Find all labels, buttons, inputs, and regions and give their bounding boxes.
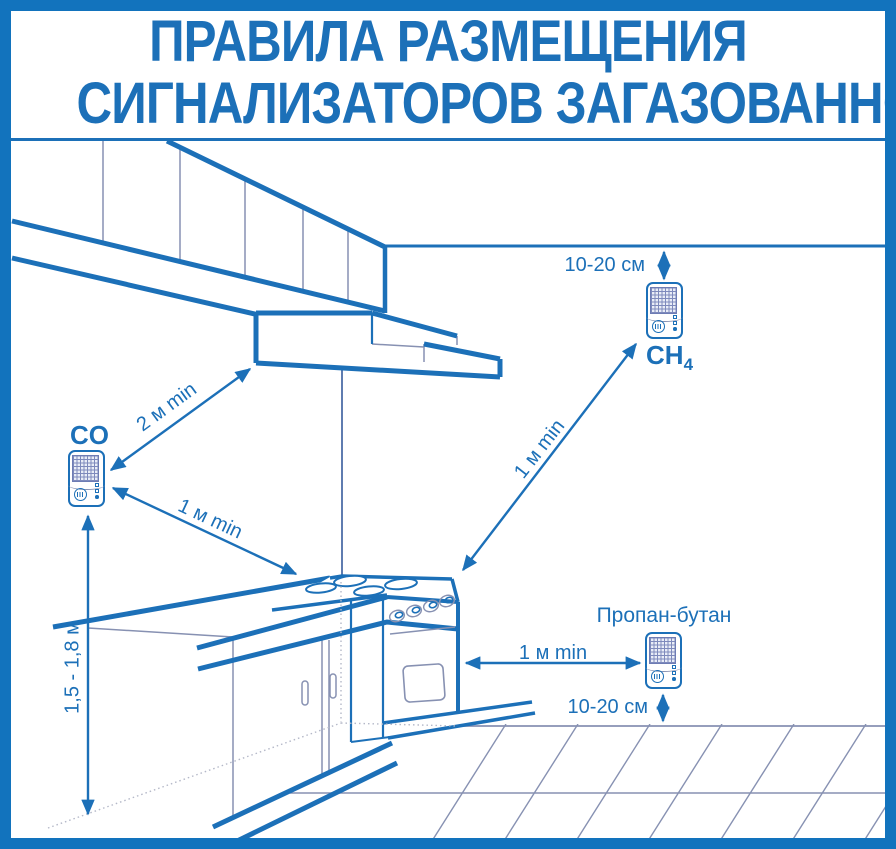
- detector-wave-line: [645, 662, 682, 672]
- ch4-label: CH4: [646, 340, 693, 375]
- ch4-detector: [646, 282, 683, 339]
- oven-door: [403, 664, 445, 703]
- gas-detector-placement-poster: ПРАВИЛА РАЗМЕЩЕНИЯ СИГНАЛИЗАТОРОВ ЗАГАЗО…: [0, 0, 896, 849]
- dim-arrow-co-stove: [113, 488, 296, 574]
- detector-grille: [650, 287, 677, 314]
- poster-title-line2: СИГНАЛИЗАТОРОВ ЗАГАЗОВАННОСТИ: [77, 73, 820, 135]
- dim-label-floor-offset: 10-20 см: [548, 696, 648, 719]
- ch4-label-main: CH: [646, 340, 684, 370]
- dim-label-mount-height: 1,5 - 1,8 м: [62, 608, 85, 728]
- propane-label: Пропан-бутан: [584, 604, 744, 628]
- ch4-label-sub: 4: [684, 355, 693, 374]
- dim-label-stove-min-propane: 1 м min: [498, 642, 608, 665]
- propane-detector: [645, 632, 682, 689]
- room-walls: [342, 246, 885, 581]
- cooker-hood: [256, 311, 502, 379]
- detector-logo-icon: [651, 670, 664, 683]
- detector-grille: [649, 637, 676, 664]
- detector-leds: [673, 315, 677, 332]
- poster-title-line1: ПРАВИЛА РАЗМЕЩЕНИЯ: [77, 11, 820, 73]
- floor: [281, 724, 896, 849]
- stove: [272, 574, 535, 742]
- detector-logo-icon: [652, 320, 665, 333]
- detector-grille: [72, 455, 99, 482]
- detector-wave-line: [646, 312, 683, 322]
- co-label: CO: [70, 420, 106, 451]
- upper-cabinets: [12, 141, 385, 317]
- dim-label-ceiling-offset: 10-20 см: [545, 254, 645, 277]
- poster-title: ПРАВИЛА РАЗМЕЩЕНИЯ СИГНАЛИЗАТОРОВ ЗАГАЗО…: [11, 11, 885, 135]
- detector-logo-icon: [74, 488, 87, 501]
- detector-leds: [95, 483, 99, 500]
- co-detector: [68, 450, 105, 507]
- detector-wave-line: [68, 480, 105, 490]
- title-divider: [11, 138, 885, 141]
- detector-leds: [672, 665, 676, 682]
